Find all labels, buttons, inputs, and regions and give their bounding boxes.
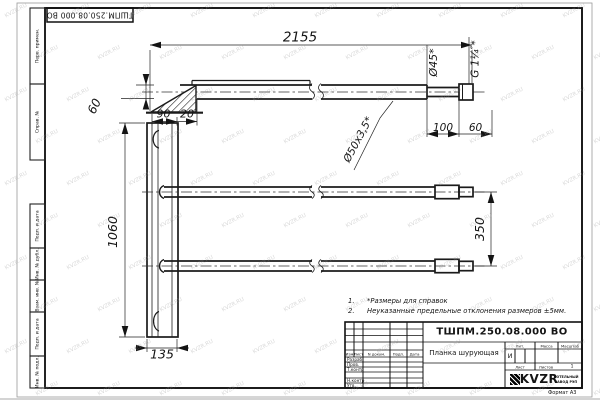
dim-overall-length: 2155	[283, 30, 317, 46]
dim-end-section: 100	[433, 122, 453, 134]
col-list: Лист	[354, 351, 364, 356]
margin-label-inv-dubl: Инв. № дубл.	[35, 248, 40, 279]
col-doc: N докум.	[368, 351, 386, 356]
margin-label-perv-primen: Перв. примен.	[35, 29, 40, 64]
dim-plank-height: 1060	[105, 216, 120, 248]
dim-plank-foot: 135	[150, 347, 174, 362]
dim-thread-section: 60	[469, 122, 483, 134]
title-part-name: Планка шурующая	[429, 349, 498, 357]
note-2-text: Неуказанные предельные отклонения размер…	[367, 307, 566, 315]
margin-label-podp-data-2: Подп. и дата	[35, 318, 40, 349]
title-designation: ТШПМ.250.08.000 ВО	[436, 327, 567, 338]
margin-label-podp-data-1: Подп. и дата	[35, 210, 40, 241]
mass-label: Масса	[540, 343, 552, 348]
note-1: 1.*Размеры для справок	[348, 297, 566, 305]
dim-tube-pitch: 350	[472, 217, 487, 241]
col-izm: Изм	[346, 351, 354, 356]
margin-label-inv-podl: Инв. № подл.	[35, 356, 40, 388]
dim-end-offset: 60	[85, 96, 104, 116]
kvzr-logo-mark	[510, 374, 520, 385]
top-stamp-designation: ТШПМ.250.08.000 ВО	[46, 11, 133, 20]
format-note: Формат А3	[548, 390, 576, 396]
sheets-label: Листов	[539, 364, 553, 369]
dim-end-diameter: Ø45*	[427, 48, 440, 78]
col-sign: Подп.	[393, 351, 405, 356]
page-border	[0, 3, 600, 399]
drawing-svg: 2155 60 90 20 Ø45* G 1¼″* 100 60 Ø50х3,5…	[0, 0, 600, 400]
row-approved: Утв.	[347, 383, 356, 388]
margin-label-sprav-no: Справ. №	[35, 111, 40, 133]
note-2-number: 2.	[348, 307, 367, 315]
dim-tube-diameter: Ø50х3,5*	[341, 115, 375, 165]
note-2: 2.Неуказанные предельные отклонения разм…	[348, 307, 566, 315]
lit-value: И	[508, 352, 513, 360]
note-1-number: 1.	[348, 297, 367, 305]
kvzr-logo-line1: КОТЕЛЬНЫЙ	[554, 375, 579, 379]
dim-plate-offset: 20	[180, 108, 194, 121]
dim-thread: G 1¼″*	[470, 40, 482, 78]
drawing-sheet: 2155 60 90 20 Ø45* G 1¼″* 100 60 Ø50х3,5…	[0, 0, 600, 400]
note-1-text: *Размеры для справок	[367, 297, 448, 305]
kvzr-logo-text: KVZR	[520, 372, 559, 386]
col-date: Дата	[410, 351, 420, 356]
margin-label-vzam-inv: Взам. инв. №	[35, 280, 40, 311]
sheet-label: Лист	[515, 364, 525, 369]
dim-plate-width: 90	[157, 108, 171, 121]
scale-label: Масштаб	[561, 343, 579, 348]
notes-block: 1.*Размеры для справок 2.Неуказанные пре…	[348, 297, 566, 315]
sheets-value: 1	[571, 364, 574, 369]
lit-label: Лит.	[516, 343, 525, 348]
row-tcontrol: Т.контр	[347, 367, 364, 372]
kvzr-logo-line2: ЗАВОД РЭП	[555, 380, 578, 384]
